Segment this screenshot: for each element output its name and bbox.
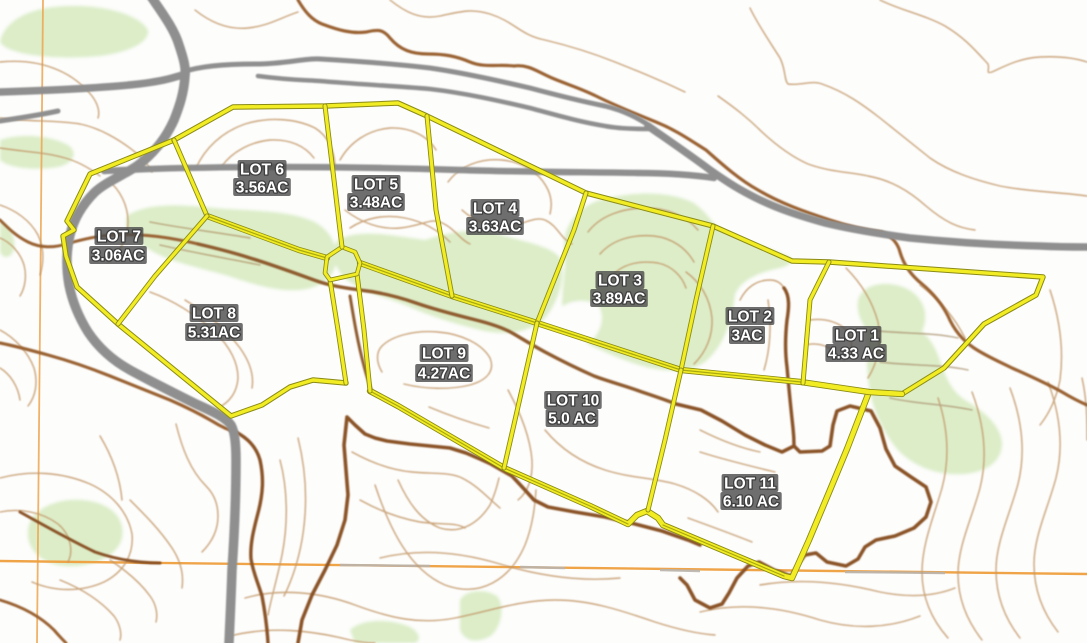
svg-text:3AC: 3AC (731, 327, 762, 344)
svg-text:6.10 AC: 6.10 AC (723, 493, 779, 510)
svg-text:4.33 AC: 4.33 AC (828, 345, 884, 362)
svg-text:3.63AC: 3.63AC (469, 218, 522, 235)
svg-text:LOT 6: LOT 6 (240, 161, 284, 178)
svg-text:3.56AC: 3.56AC (236, 179, 289, 196)
svg-text:LOT 2: LOT 2 (728, 308, 772, 325)
svg-text:LOT 3: LOT 3 (598, 272, 642, 289)
svg-text:LOT 10: LOT 10 (547, 392, 600, 409)
svg-text:LOT 1: LOT 1 (835, 327, 879, 344)
svg-text:3.48AC: 3.48AC (350, 194, 403, 211)
svg-text:LOT 11: LOT 11 (724, 475, 776, 492)
svg-text:LOT 7: LOT 7 (97, 228, 141, 245)
svg-text:3.06AC: 3.06AC (92, 247, 145, 264)
svg-text:3.89AC: 3.89AC (593, 290, 646, 307)
svg-text:LOT 4: LOT 4 (473, 200, 517, 217)
svg-text:5.31AC: 5.31AC (188, 324, 241, 341)
svg-text:LOT 9: LOT 9 (422, 345, 466, 362)
svg-text:4.27AC: 4.27AC (418, 365, 471, 382)
svg-text:5.0 AC: 5.0 AC (548, 410, 596, 427)
svg-text:LOT 8: LOT 8 (192, 305, 236, 322)
svg-text:LOT 5: LOT 5 (354, 176, 398, 193)
